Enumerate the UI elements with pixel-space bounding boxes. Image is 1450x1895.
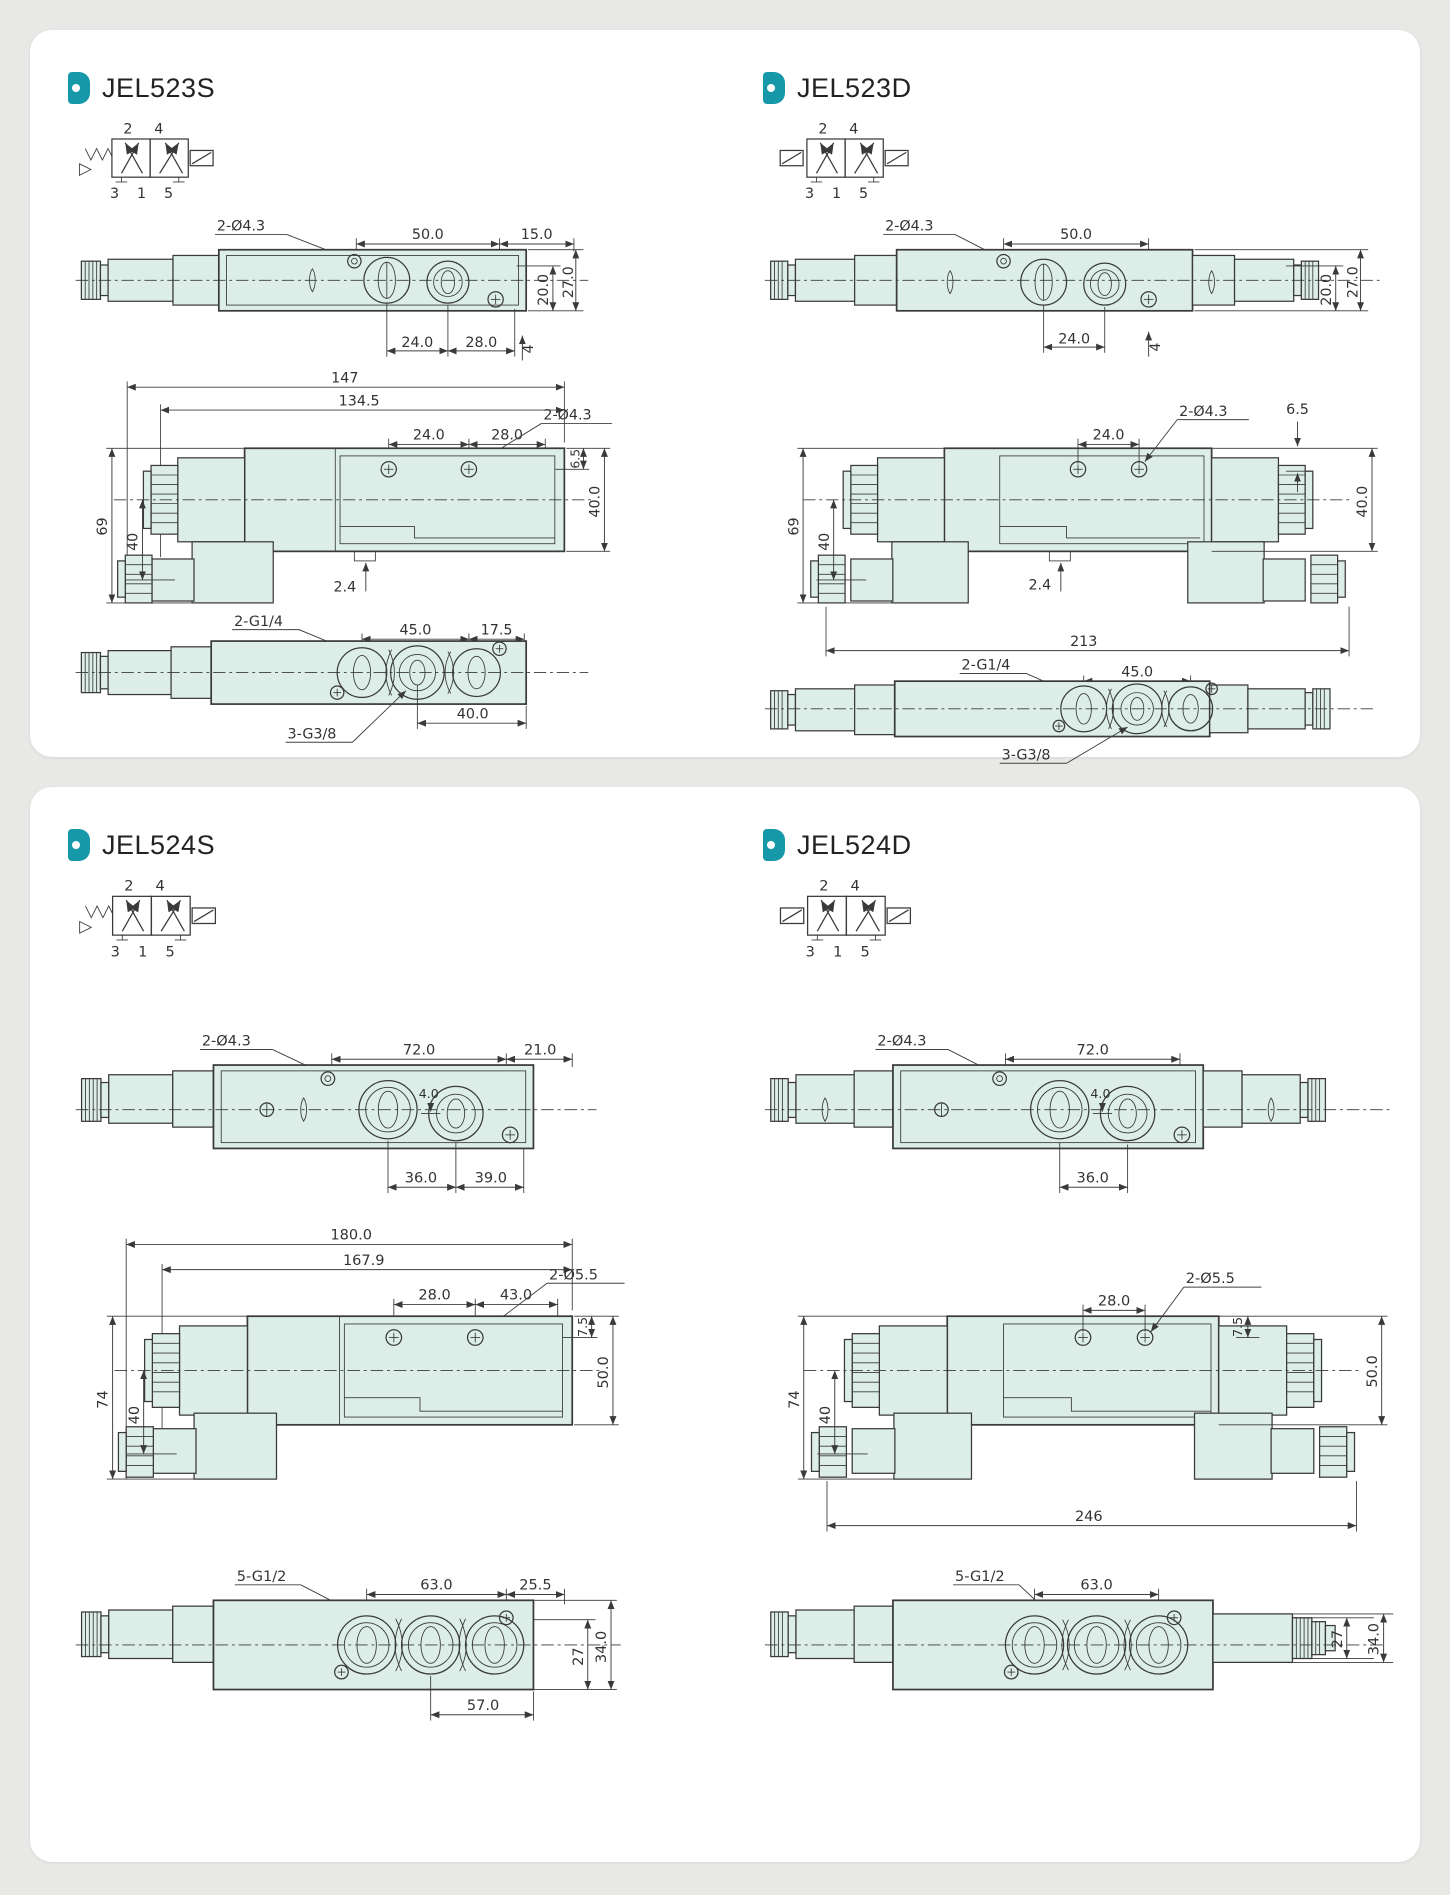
dim-hole-label: 2-Ø5.5 — [549, 1267, 598, 1283]
page-title: JEL524D — [797, 830, 912, 861]
dim-coil-height: 40 — [126, 533, 142, 551]
dim-top-offset: 7.5 — [575, 1317, 590, 1337]
spring-symbol — [85, 149, 112, 160]
dim-right: 34.0 — [1367, 1623, 1383, 1655]
bullet-icon — [68, 72, 90, 104]
dim-screw-pitch: 28.0 — [1098, 1294, 1130, 1310]
dim-pitch: 36.0 — [405, 1170, 437, 1186]
section-jel523d: JEL523D 2 4 3 1 5 2-Ø4.3 50.0 — [725, 30, 1420, 757]
dim-hole-label: 2-Ø4.3 — [543, 408, 591, 424]
page-title: JEL524S — [102, 830, 215, 861]
dim-top-offset: 6.5 — [568, 449, 583, 469]
page-title: JEL523S — [102, 73, 215, 104]
top-view: 2-Ø4.3 72.0 21.0 4.0 36.0 39.0 — [76, 1034, 597, 1193]
dim-pitch: 39.0 — [475, 1170, 507, 1186]
dim-hole-label: 2-Ø4.3 — [217, 219, 265, 235]
symbol-bottom-ports: 3 1 5 — [111, 944, 182, 960]
bullet-dot-icon — [767, 841, 775, 849]
front-view: 180.0 167.9 28.0 43.0 2-Ø5.5 74 — [96, 1228, 625, 1480]
dim-hole-label: 2-Ø5.5 — [1186, 1271, 1235, 1287]
dim-overall-height: 74 — [787, 1390, 803, 1409]
dim-pitch: 28.0 — [465, 335, 497, 351]
section-jel524d: JEL524D 2 4 3 1 5 2-Ø4.3 72.0 — [725, 787, 1420, 1862]
dim-port-label: 2-G1/4 — [234, 614, 283, 630]
dim-height: 20.0 — [1319, 274, 1335, 306]
dim-port-label: 5-G1/2 — [955, 1569, 1005, 1585]
dim-hole-label: 2-Ø4.3 — [1179, 404, 1227, 420]
symbol-top-ports: 2 4 — [818, 121, 867, 137]
dim-coil-height: 40 — [127, 1406, 143, 1425]
bottom-view: 5-G1/2 63.0 25.5 27 34.0 57.0 — [76, 1569, 621, 1721]
dim-height: 27.0 — [561, 266, 577, 298]
top-view: 2-Ø4.3 72.0 4.0 36.0 — [765, 1034, 1393, 1193]
bullet-icon — [763, 829, 785, 861]
section-jel524s: JEL524S 2 4 3 1 5 2-Ø4.3 72.0 21.0 — [30, 787, 725, 1862]
symbol-bottom-ports: 3 1 5 — [806, 944, 877, 960]
page: { "page":{"bg":"#e8e8e6","card_bg":"#fff… — [0, 0, 1450, 1895]
connector-block — [892, 542, 968, 603]
valve-symbol: 2 4 3 1 5 — [780, 121, 908, 202]
dim-inner: 4.0 — [1090, 1086, 1110, 1101]
dim-overall-height: 74 — [96, 1390, 112, 1409]
jel523d-drawing: 2 4 3 1 5 2-Ø4.3 50.0 — [763, 118, 1393, 767]
bottom-view: 2-G1/4 45.0 17.5 3-G3/8 40.0 — [76, 614, 589, 743]
dim-pitch: 36.0 — [1077, 1170, 1109, 1186]
connector-block — [194, 1413, 276, 1479]
dim-hole-label: 2-Ø4.3 — [885, 219, 933, 235]
symbol-top-ports: 2 4 — [819, 879, 868, 895]
dim-right: 40.0 — [457, 706, 489, 722]
panel-jel523: JEL523S 2 4 3 1 5 2-Ø4.3 50.0 15.0 — [30, 30, 1420, 757]
title-row: JEL523D — [763, 72, 1420, 104]
dim-top-offset: 6.5 — [1286, 402, 1309, 418]
pilot-triangle-icon — [79, 164, 90, 175]
dim-body-height: 40.0 — [588, 486, 604, 518]
dim-screw-pitch: 28.0 — [491, 428, 523, 444]
top-view: 2-Ø4.3 50.0 15.0 20.0 27.0 24.0 — [76, 219, 589, 361]
connector-block — [192, 542, 273, 603]
dim-port-pitch: 45.0 — [400, 622, 432, 638]
bullet-dot-icon — [72, 84, 80, 92]
bullet-dot-icon — [767, 84, 775, 92]
dim-edge: 25.5 — [519, 1578, 551, 1594]
dim-plate: 2.4 — [1028, 578, 1051, 594]
dim-body-height: 40.0 — [1355, 486, 1371, 518]
dim-width: 72.0 — [403, 1042, 435, 1058]
dim-port-label: 3-G3/8 — [1002, 747, 1051, 763]
symbol-top-ports: 2 4 — [123, 121, 172, 137]
dim-hole-label: 2-Ø4.3 — [877, 1034, 926, 1050]
connector-block — [894, 1413, 972, 1479]
dim-pitch: 24.0 — [401, 335, 433, 351]
dim-body-width: 134.5 — [339, 393, 380, 409]
jel524s-drawing: 2 4 3 1 5 2-Ø4.3 72.0 21.0 — [68, 875, 708, 1748]
dim-plate: 2.4 — [333, 579, 356, 595]
dim-width: 50.0 — [412, 227, 444, 243]
dim-width: 15.0 — [521, 227, 553, 243]
valve-symbol: 2 4 3 1 5 — [79, 121, 213, 202]
dim-height: 20.0 — [536, 274, 552, 306]
bottom-view: 2-G1/4 45.0 3-G3/8 — [765, 658, 1374, 764]
dim-port-label: 5-G1/2 — [237, 1569, 287, 1585]
jel523s-drawing: 2 4 3 1 5 2-Ø4.3 50.0 15.0 — [68, 118, 698, 767]
dim-body-height: 50.0 — [596, 1356, 612, 1388]
dim-port-pitch: 63.0 — [1080, 1578, 1112, 1594]
top-view: 2-Ø4.3 50.0 20.0 27.0 24.0 — [765, 219, 1384, 357]
dim-screw-pitch: 28.0 — [418, 1288, 450, 1304]
bottom-view: 5-G1/2 63.0 27 34.0 — [765, 1569, 1393, 1690]
dim-port-pitch: 45.0 — [1121, 664, 1153, 680]
front-view: 28.0 2-Ø5.5 7.5 50.0 74 40 246 — [787, 1271, 1388, 1531]
title-row: JEL524S — [68, 829, 725, 861]
dim-edge: 17.5 — [481, 622, 513, 638]
dim-width: 72.0 — [1077, 1042, 1109, 1058]
bullet-icon — [68, 829, 90, 861]
dim-inner: 4.0 — [419, 1086, 439, 1101]
dim-offset: 4 — [521, 344, 537, 353]
pilot-triangle-icon — [80, 922, 92, 934]
dim-offset: 4 — [1148, 343, 1164, 352]
dim-screw-pitch: 43.0 — [500, 1288, 532, 1304]
dim-overall-height: 69 — [95, 517, 111, 535]
dim-bottom: 57.0 — [467, 1698, 499, 1714]
dim-overall-width: 147 — [331, 370, 358, 386]
connector-block — [1195, 1413, 1273, 1479]
bullet-dot-icon — [72, 841, 80, 849]
title-row: JEL523S — [68, 72, 725, 104]
dim-screw-pitch: 24.0 — [1093, 428, 1125, 444]
panel-jel524: JEL524S 2 4 3 1 5 2-Ø4.3 72.0 21.0 — [30, 787, 1420, 1862]
dim-right: 27 — [1330, 1630, 1346, 1649]
dim-width: 21.0 — [524, 1042, 556, 1058]
section-jel523s: JEL523S 2 4 3 1 5 2-Ø4.3 50.0 15.0 — [30, 30, 725, 757]
dim-overall-width: 246 — [1075, 1509, 1103, 1525]
dim-port-label: 3-G3/8 — [288, 726, 337, 742]
symbol-bottom-ports: 3 1 5 — [805, 186, 875, 202]
dim-overall-width: 213 — [1070, 634, 1097, 650]
front-view: 147 134.5 24.0 28.0 2-Ø4.3 — [95, 370, 612, 602]
dim-screw-pitch: 24.0 — [413, 428, 445, 444]
title-row: JEL524D — [763, 829, 1420, 861]
dim-port-label: 2-G1/4 — [962, 658, 1011, 674]
front-view: 24.0 2-Ø4.3 6.5 40.0 69 40 2.4 213 — [786, 402, 1377, 656]
dim-pitch: 24.0 — [1058, 331, 1090, 347]
page-title: JEL523D — [797, 73, 912, 104]
valve-symbol: 2 4 3 1 5 — [780, 879, 910, 961]
dim-right: 34.0 — [594, 1631, 610, 1663]
dim-hole-label: 2-Ø4.3 — [202, 1034, 251, 1050]
dim-width: 50.0 — [1060, 227, 1092, 243]
symbol-bottom-ports: 3 1 5 — [110, 186, 180, 202]
valve-symbol: 2 4 3 1 5 — [80, 879, 216, 961]
dim-overall-width: 180.0 — [330, 1228, 372, 1244]
dim-top-offset: 7.5 — [1230, 1317, 1245, 1337]
dim-body-width: 167.9 — [343, 1253, 385, 1269]
jel524d-drawing: 2 4 3 1 5 2-Ø4.3 72.0 4.0 — [763, 875, 1403, 1748]
bullet-icon — [763, 72, 785, 104]
dim-height: 27.0 — [1346, 266, 1362, 298]
spring-symbol — [85, 906, 112, 918]
dim-port-pitch: 63.0 — [420, 1578, 452, 1594]
symbol-top-ports: 2 4 — [124, 879, 173, 895]
dim-right: 27 — [571, 1647, 587, 1666]
dim-coil-height: 40 — [818, 1406, 834, 1425]
dim-overall-height: 69 — [786, 517, 802, 535]
dim-body-height: 50.0 — [1365, 1355, 1381, 1387]
dim-coil-height: 40 — [817, 533, 833, 551]
